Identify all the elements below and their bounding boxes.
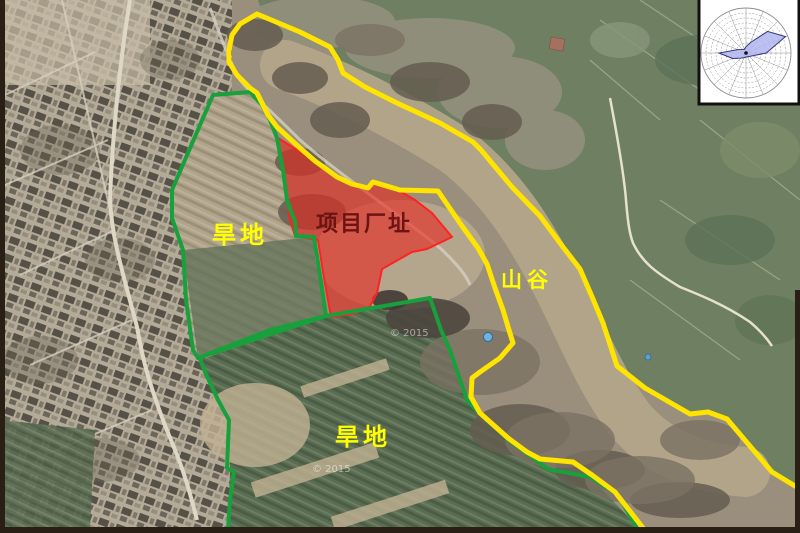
satellite-basemap: © 2015 © 2015 bbox=[0, 0, 800, 533]
wind-rose-center-dot bbox=[744, 51, 748, 55]
label-valley: 山谷 bbox=[501, 268, 553, 292]
satellite-map-figure: © 2015 © 2015 旱地 项目厂址 山谷 旱地 bbox=[0, 0, 800, 533]
photo-edge-bottom bbox=[0, 527, 800, 533]
bottomleft-fields bbox=[0, 420, 95, 529]
label-dryland-lower: 旱地 bbox=[335, 423, 391, 451]
imagery-watermark-2: © 2015 bbox=[312, 464, 351, 475]
photo-edge-left bbox=[0, 0, 5, 533]
wind-rose-inset bbox=[699, 0, 799, 104]
farm-building bbox=[549, 37, 565, 51]
imagery-watermark: © 2015 bbox=[390, 328, 429, 339]
map-canvas: © 2015 © 2015 旱地 项目厂址 山谷 旱地 bbox=[0, 0, 800, 533]
pond-dot-small bbox=[645, 354, 651, 360]
photo-edge-right bbox=[795, 290, 800, 533]
pond-dot bbox=[484, 333, 493, 342]
label-dryland-upper: 旱地 bbox=[212, 221, 268, 249]
label-project-site: 项目厂址 bbox=[316, 211, 412, 237]
